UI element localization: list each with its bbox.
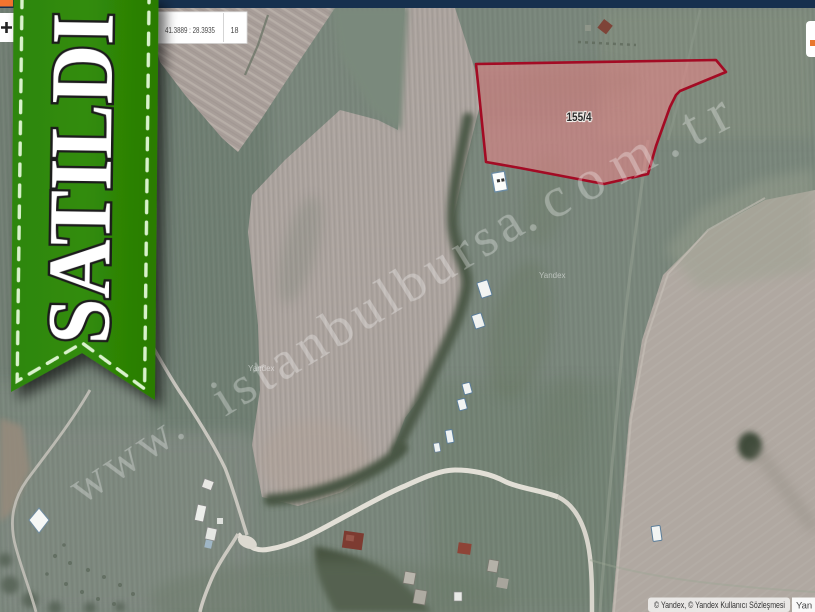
svg-text:Yandex: Yandex <box>539 271 566 280</box>
svg-text:41.3889 : 28.3935: 41.3889 : 28.3935 <box>165 25 215 35</box>
svg-text:18: 18 <box>231 25 239 35</box>
svg-text:155/4: 155/4 <box>567 110 592 124</box>
svg-text:SATILDI: SATILDI <box>30 12 132 344</box>
svg-text:© Yandex, © Yandex Kullanıcı S: © Yandex, © Yandex Kullanıcı Sözleşmesi <box>654 600 785 610</box>
svg-text:Yan: Yan <box>796 601 812 612</box>
